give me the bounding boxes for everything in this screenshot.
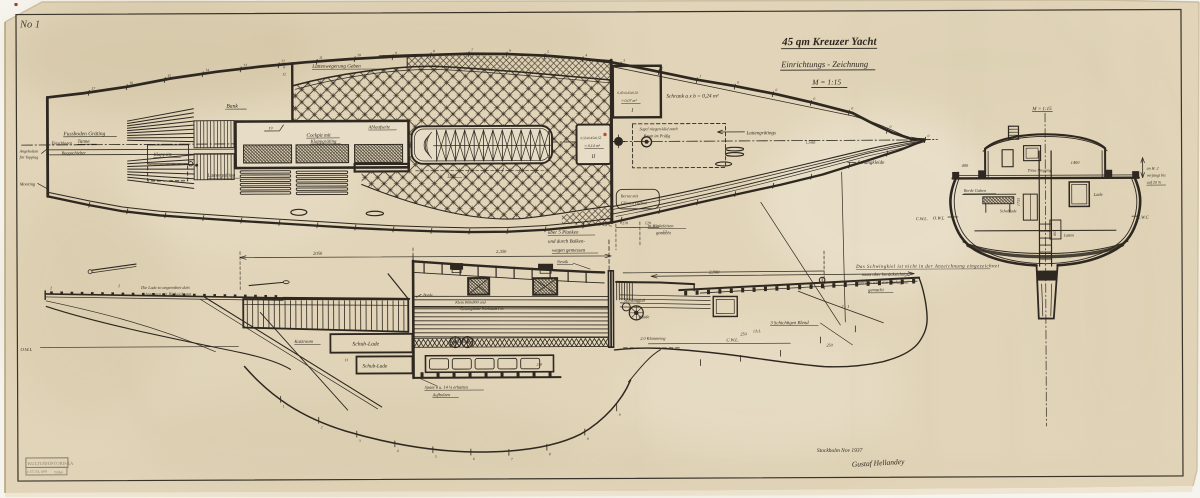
svg-text:Schub-Lade: Schub-Lade <box>362 363 388 369</box>
svg-text:2: 2 <box>50 285 52 290</box>
svg-text:4: 4 <box>585 53 587 57</box>
svg-text:l.h.L: l.h.L <box>753 328 761 333</box>
svg-text:13: 13 <box>243 63 247 67</box>
svg-text:14: 14 <box>205 68 209 72</box>
svg-text:gemacht: gemacht <box>868 287 884 292</box>
svg-text:M = 1:15: M = 1:15 <box>811 77 841 86</box>
svg-text:1800: 1800 <box>448 173 457 178</box>
svg-text:für Topplag: für Topplag <box>20 154 39 159</box>
svg-text:6: 6 <box>473 457 475 461</box>
svg-text:6: 6 <box>509 48 511 52</box>
svg-text:auf 20 %: auf 20 % <box>1147 180 1162 185</box>
svg-text:2 : 1: 2 : 1 <box>841 304 849 309</box>
svg-text:Kazzraum: Kazzraum <box>293 339 313 344</box>
svg-text:Lattengrätings: Lattengrätings <box>745 131 776 136</box>
svg-text:19: 19 <box>268 125 272 130</box>
svg-text:Lade: Lade <box>1093 192 1103 197</box>
svg-text:Schublade: Schublade <box>1000 208 1017 213</box>
svg-text:1400: 1400 <box>1071 160 1081 165</box>
svg-text:1: 1 <box>283 404 285 408</box>
svg-text:6: 6 <box>283 65 285 69</box>
svg-text:9: 9 <box>587 437 589 441</box>
svg-text:248: 248 <box>536 363 542 367</box>
svg-text:C.W.L.: C.W.L. <box>916 216 928 221</box>
svg-text:Baggschieber: Baggschieber <box>62 150 86 155</box>
svg-text:Schub-Lade: Schub-Lade <box>352 341 379 347</box>
svg-text:9: 9 <box>619 413 621 417</box>
svg-text:in Winkeleisen: in Winkeleisen <box>648 223 674 228</box>
svg-text:250: 250 <box>740 331 747 336</box>
svg-text:Segel niegen-klid nach: Segel niegen-klid nach <box>639 126 677 131</box>
svg-text:C.W.C: C.W.C <box>1137 215 1150 220</box>
svg-text:8: 8 <box>433 49 435 53</box>
svg-text:Schwingfall: Schwingfall <box>624 298 646 303</box>
svg-text:C.W.L.: C.W.L. <box>726 337 738 342</box>
svg-text:0: 0 <box>813 97 815 101</box>
svg-text:an H. 2: an H. 2 <box>1147 166 1159 171</box>
svg-text:Einrichtungs - Zeichnung: Einrichtungs - Zeichnung <box>780 59 868 69</box>
svg-text:1: 1 <box>699 74 701 78</box>
svg-text:850: 850 <box>1053 230 1057 236</box>
svg-text:Tillhör: Tillhör <box>54 470 64 474</box>
svg-text:250: 250 <box>826 342 833 347</box>
svg-text:400: 400 <box>962 163 969 168</box>
svg-text:2050: 2050 <box>313 251 323 256</box>
svg-text:werden wird aus Mahagoni: werden wird aus Mahagoni <box>858 280 909 285</box>
svg-text:3: 3 <box>623 59 625 63</box>
svg-text:7: 7 <box>511 457 513 461</box>
svg-text:Nestik: Nestik <box>556 259 569 264</box>
svg-text:0: 0 <box>775 88 777 92</box>
svg-text:2: 2 <box>118 283 120 288</box>
svg-text:Stockholm Nov 1937: Stockholm Nov 1937 <box>817 448 863 454</box>
svg-text:verjüngt bis: verjüngt bis <box>1147 173 1166 178</box>
svg-text:≈270: ≈270 <box>620 220 628 225</box>
svg-text:O.W.L: O.W.L <box>20 347 32 352</box>
svg-text:Einschlagen: Einschlagen <box>51 140 73 145</box>
svg-text:Antennen mit Rücksicht gut: Antennen mit Rücksicht gut <box>144 291 192 296</box>
svg-text:Berste mit: Berste mit <box>621 193 639 198</box>
svg-text:12: 12 <box>281 59 285 63</box>
svg-text:2: 2 <box>321 425 323 429</box>
svg-text:11: 11 <box>319 56 323 60</box>
svg-text:8: 8 <box>549 452 551 456</box>
svg-text:Trina Niegang: Trina Niegang <box>1028 168 1051 173</box>
svg-text:3: 3 <box>359 439 361 443</box>
svg-text:Klein 800x800 und: Klein 800x800 und <box>454 299 486 304</box>
svg-text:0: 0 <box>851 107 853 111</box>
svg-text:Winde: Winde <box>638 314 649 319</box>
svg-text:Borde Gaben: Borde Gaben <box>964 188 986 193</box>
svg-text:gemacht: gemacht <box>656 230 672 235</box>
svg-text:Angeholzen: Angeholzen <box>19 148 39 153</box>
svg-text:15: 15 <box>167 74 171 78</box>
svg-text:Borde: Borde <box>423 292 433 297</box>
svg-text:0: 0 <box>928 134 930 138</box>
svg-text:No 1: No 1 <box>19 19 40 30</box>
svg-text:5: 5 <box>435 455 437 459</box>
svg-text:Schangkleide: Schangkleide <box>858 161 885 166</box>
svg-text:1733: 1733 <box>1016 198 1021 206</box>
svg-text:4: 4 <box>397 449 399 453</box>
svg-text:Bank: Bank <box>226 104 238 110</box>
svg-text:13: 13 <box>344 358 348 362</box>
svg-text:0: 0 <box>737 81 739 85</box>
svg-text:5: 5 <box>547 50 549 54</box>
svg-text:und durch Balken-: und durch Balken- <box>548 240 585 245</box>
svg-text:16: 16 <box>129 81 133 85</box>
svg-text:12: 12 <box>282 72 286 76</box>
svg-text:Raum im Prüfig: Raum im Prüfig <box>642 133 670 138</box>
svg-text:muss aber berücksichtigt: muss aber berücksichtigt <box>862 272 909 277</box>
svg-text:Spant 8 u. 14 ¼ erhalten: Spant 8 u. 14 ¼ erhalten <box>425 385 469 390</box>
svg-text:KULTURHISTORISKA: KULTURHISTORISKA <box>28 461 74 466</box>
svg-text:Schrank a x b = 0,24 m²: Schrank a x b = 0,24 m² <box>666 93 719 99</box>
svg-text:10: 10 <box>357 53 361 57</box>
svg-text:Mooring: Mooring <box>19 181 36 186</box>
svg-text:2.0 Klemmring: 2.0 Klemmring <box>640 336 665 341</box>
svg-text:Aufholzen: Aufholzen <box>432 392 451 397</box>
svg-text:9: 9 <box>395 51 397 55</box>
svg-text:Gesungleiter Werkstatt Fin: Gesungleiter Werkstatt Fin <box>460 306 503 311</box>
svg-text:Glörten Hieben: Glörten Hieben <box>621 200 647 205</box>
svg-text:45 qm Kreuzer Yacht: 45 qm Kreuzer Yacht <box>781 36 877 48</box>
svg-text:0: 0 <box>889 125 891 129</box>
svg-text:Latten: Latten <box>1063 232 1074 237</box>
svg-text:O.W.L: O.W.L <box>933 215 945 220</box>
svg-text:Die Lade so angeordnet dass: Die Lade so angeordnet dass <box>140 285 190 290</box>
